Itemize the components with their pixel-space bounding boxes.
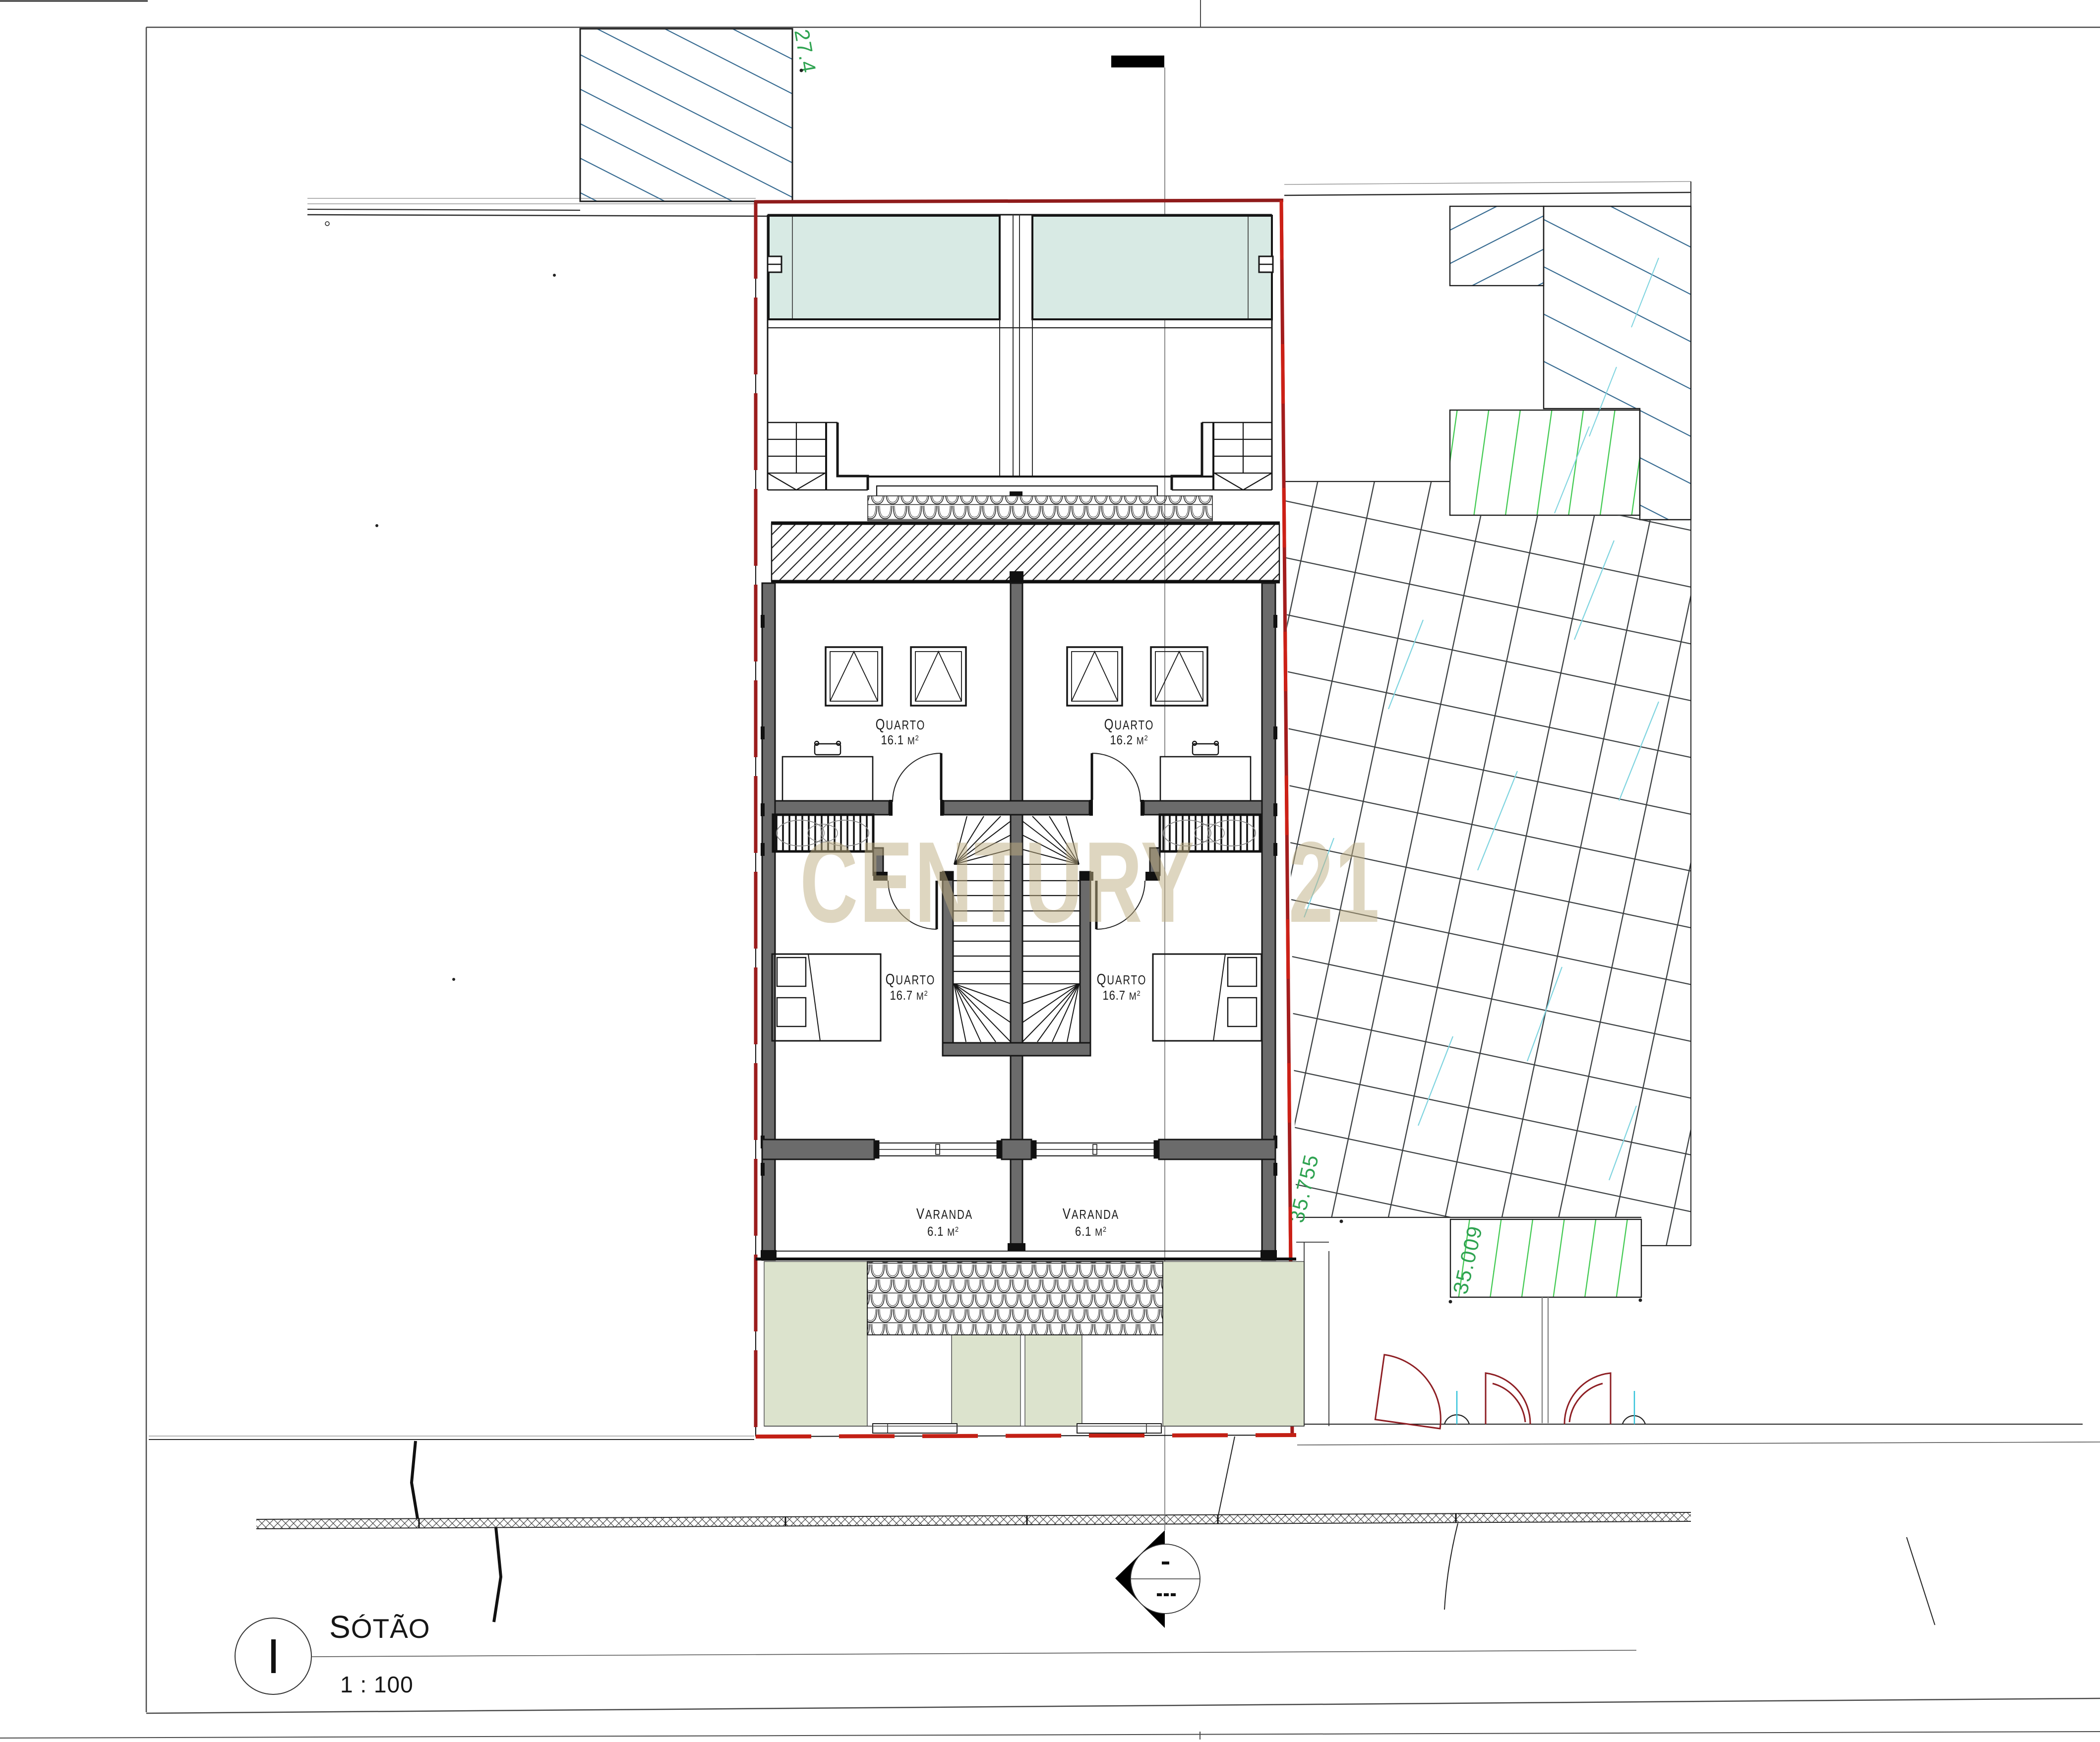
svg-text:6.1 M2: 6.1 M2 <box>1075 1224 1107 1239</box>
svg-text:16.7 M2: 16.7 M2 <box>890 988 928 1003</box>
svg-text:6.1 M2: 6.1 M2 <box>927 1224 959 1239</box>
svg-text:QUARTO: QUARTO <box>886 970 936 988</box>
svg-text:QUARTO: QUARTO <box>876 716 926 733</box>
svg-text:16.7 M2: 16.7 M2 <box>1102 988 1140 1003</box>
svg-text:CENTURY21: CENTURY21 <box>800 818 1381 946</box>
svg-text:VARANDA: VARANDA <box>1063 1205 1119 1222</box>
svg-text:VARANDA: VARANDA <box>916 1205 973 1222</box>
svg-text:QUARTO: QUARTO <box>1097 970 1147 988</box>
svg-text:1 : 100: 1 : 100 <box>340 1672 414 1697</box>
svg-text:16.2 M2: 16.2 M2 <box>1110 733 1148 747</box>
svg-text:SÓTÃO: SÓTÃO <box>329 1609 430 1645</box>
svg-text:16.1 M2: 16.1 M2 <box>881 733 919 747</box>
svg-text:QUARTO: QUARTO <box>1104 716 1154 733</box>
